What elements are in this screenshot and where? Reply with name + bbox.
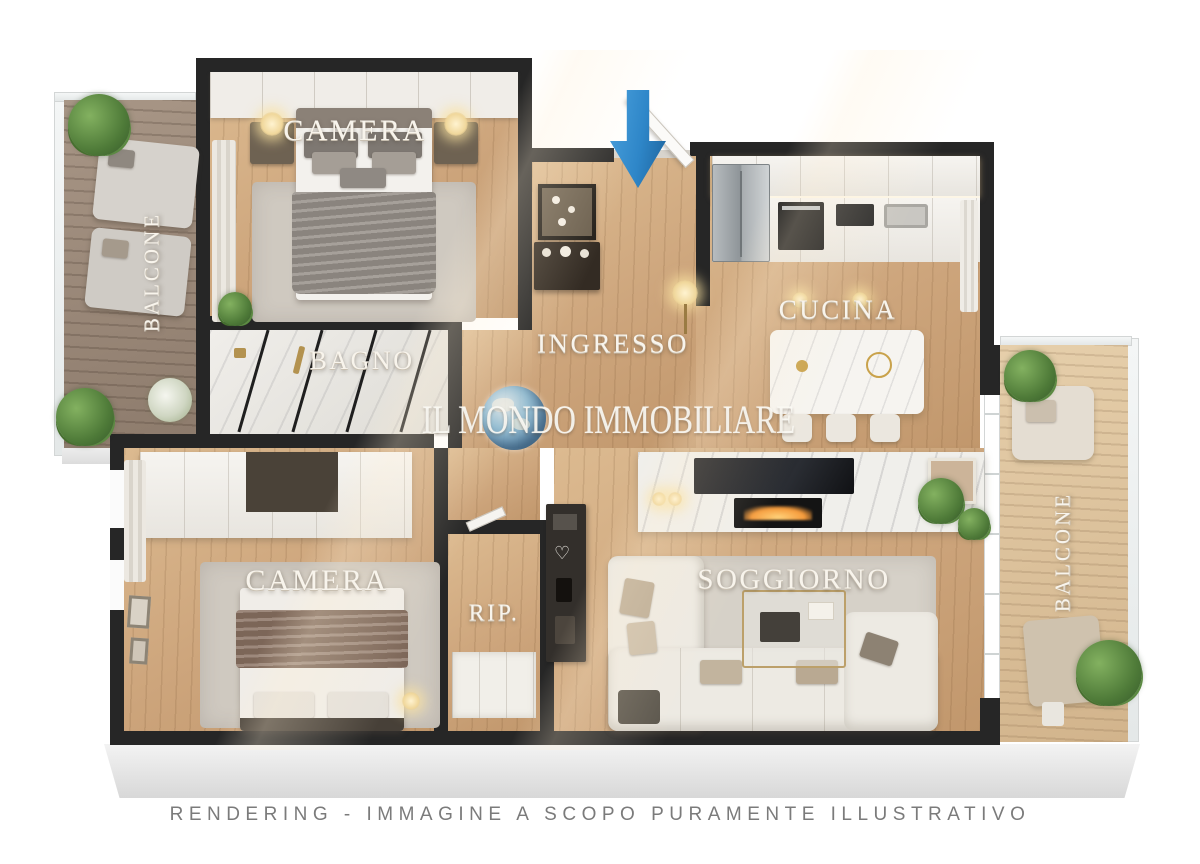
room-label-balcone-left: BALCONE — [140, 212, 165, 332]
wall-segment — [196, 58, 532, 72]
fridge-door-seam — [740, 171, 742, 257]
vase — [560, 246, 571, 257]
window — [110, 560, 124, 610]
room-label-bagno: BAGNO — [310, 346, 415, 376]
wall-art-frame — [129, 637, 149, 664]
bed-double — [240, 588, 404, 731]
room-label-camera-bottom: CAMERA — [245, 564, 388, 598]
wall-segment — [690, 142, 994, 156]
oven-handle — [782, 206, 820, 210]
potted-plant — [68, 94, 130, 156]
potted-plant — [218, 292, 252, 326]
vase — [580, 249, 589, 258]
gold-decor — [796, 360, 808, 372]
potted-plant — [958, 508, 990, 540]
console-table — [534, 242, 600, 290]
table-lamp — [260, 112, 284, 136]
disclaimer-text: RENDERING - IMMAGINE A SCOPO PURAMENTE I… — [0, 804, 1200, 826]
gold-accessory — [234, 348, 246, 358]
wall-segment — [196, 58, 210, 448]
wall-segment — [980, 698, 1000, 745]
rip-closet-door — [452, 652, 536, 718]
foundation-slab — [104, 744, 1140, 798]
headboard — [240, 718, 404, 731]
wardrobe-tv-nook — [246, 452, 338, 512]
shelf-decor — [555, 616, 575, 644]
entry-mirror — [538, 184, 596, 240]
decor-light — [568, 206, 575, 213]
sofa-chaise — [844, 612, 938, 731]
bed-accent-pillow — [340, 168, 386, 188]
wall-segment — [434, 520, 554, 534]
hall-shelf-unit: ♡ — [546, 504, 586, 662]
bedside-lamp — [402, 692, 420, 710]
room-label-ingresso: INGRESSO — [537, 329, 689, 360]
bed-duvet — [292, 192, 436, 294]
fire-flames — [744, 506, 812, 520]
potted-plant — [1004, 350, 1056, 402]
vase — [556, 578, 572, 602]
room-label-cucina: CUCINA — [779, 295, 898, 326]
decor-light — [558, 218, 566, 226]
sofa-pillow — [700, 660, 742, 684]
gold-branch-centerpiece — [866, 352, 892, 378]
lounge-chair — [84, 227, 192, 317]
decor-light — [552, 196, 560, 204]
wall-segment — [696, 156, 710, 306]
kitchen-curtain — [960, 200, 978, 312]
dining-chair — [826, 414, 856, 442]
vase — [542, 248, 551, 257]
kitchen-sink — [884, 204, 928, 228]
wall-segment — [980, 142, 994, 354]
potted-plant — [918, 478, 964, 524]
wall-art-frame — [127, 595, 151, 628]
plant-pot — [1042, 702, 1064, 726]
tv-screen — [694, 458, 854, 494]
soggiorno-glass-wall — [984, 352, 1000, 731]
bed-pillow — [328, 692, 388, 718]
room-label-soggiorno: SOGGIORNO — [697, 564, 890, 597]
mantel-lamp — [652, 492, 666, 506]
coffee-table-books — [808, 602, 834, 620]
room-label-camera-top: CAMERA — [283, 114, 426, 148]
white-flowers — [148, 378, 192, 422]
nested-table — [760, 612, 800, 642]
sofa-blanket — [618, 690, 660, 724]
refrigerator — [712, 164, 770, 262]
floorplan-render: ♡ — [0, 0, 1200, 864]
cooktop — [836, 204, 874, 226]
shelf-box — [553, 514, 577, 530]
dining-chair — [870, 414, 900, 442]
wall-segment — [518, 58, 532, 330]
sofa-pillow — [626, 621, 657, 656]
mantel-lamp — [668, 492, 682, 506]
bed-blanket — [236, 610, 408, 668]
window — [110, 470, 124, 528]
room-label-balcone-right: BALCONE — [1051, 492, 1076, 612]
armchair-cushion — [1026, 400, 1056, 422]
room-label-ripostiglio: RIP. — [469, 601, 520, 628]
curtain — [124, 460, 146, 582]
bed-pillow — [254, 692, 314, 718]
sofa-pillow — [619, 578, 655, 619]
floor-lamp — [672, 280, 698, 306]
lounge-pillow — [101, 238, 129, 259]
table-lamp — [444, 112, 468, 136]
potted-plant — [56, 388, 114, 446]
wall-segment — [980, 345, 1000, 395]
heart-art: ♡ — [554, 544, 570, 562]
wall-segment — [518, 148, 614, 162]
coffee-table-glass — [742, 590, 846, 668]
fireplace — [734, 498, 822, 528]
wall-segment — [110, 434, 434, 448]
watermark-text: IL MONDO IMMOBILIARE — [422, 396, 795, 443]
wall-segment — [110, 731, 1000, 745]
potted-plant — [1076, 640, 1142, 706]
oven — [778, 202, 824, 250]
